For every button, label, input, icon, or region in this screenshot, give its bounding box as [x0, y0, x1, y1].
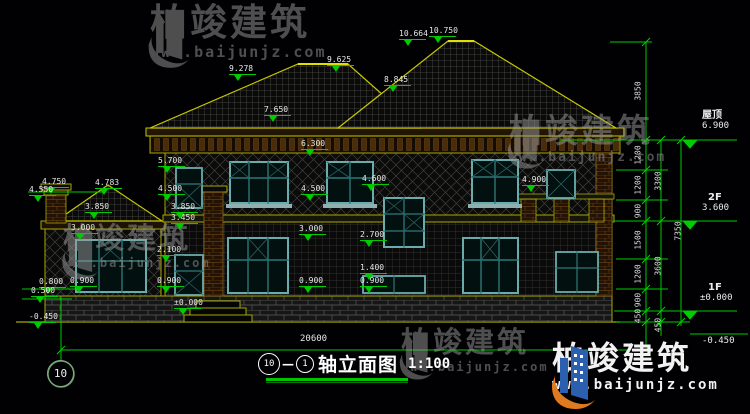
level-marker: 4.500 [301, 184, 328, 201]
title-scale: 1:100 [408, 356, 450, 372]
level-marker: 3.000 [71, 223, 98, 240]
level-marker: 3.850 [85, 202, 112, 219]
level-marker: -0.450 [29, 312, 58, 329]
below-grade-annotation: -0.450 [702, 336, 735, 346]
level-marker: 0.900 [157, 276, 184, 293]
level-marker: 4.600 [362, 174, 389, 191]
window [228, 238, 288, 293]
level-marker: 10.664 [399, 29, 428, 46]
level-marker: 3.450 [171, 213, 198, 230]
dimension-label: 900 [634, 204, 643, 218]
window [556, 252, 598, 292]
level-marker: 4.550 [29, 185, 56, 202]
level-marker: 7.650 [264, 105, 291, 122]
window [226, 162, 292, 208]
dimension-label: 7350 [674, 221, 683, 240]
dimension-label: 1200 [634, 175, 643, 194]
roof-label: 屋顶 [702, 106, 729, 121]
level-marker: 4.500 [158, 184, 185, 201]
dimension-label: 1200 [634, 145, 643, 164]
window [547, 170, 575, 198]
level-marker: 0.900 [360, 276, 387, 293]
roof [150, 41, 616, 128]
floor2-value: 3.600 [702, 203, 729, 213]
dimension-label: 3300 [654, 171, 663, 190]
level-marker: 2.700 [360, 230, 387, 247]
level-marker: 9.278 [229, 64, 256, 81]
floor1-level-annotation: 1F ±0.000 [708, 282, 733, 303]
level-marker: 9.625 [327, 55, 354, 72]
level-marker: 3.000 [299, 224, 326, 241]
dimension-label: 1500 [634, 230, 643, 249]
level-marker: 5.700 [158, 156, 185, 173]
title-axis-to-bubble: 1 [296, 355, 314, 373]
dimension-label: 450 [654, 318, 663, 332]
title-dash: — [282, 357, 294, 371]
dimension-label: 450 [634, 309, 643, 323]
window [384, 198, 424, 247]
level-marker: 4.900 [522, 175, 549, 192]
dimension-label: 3850 [634, 81, 643, 100]
dimension-label: 900 [634, 293, 643, 307]
title-underline [266, 378, 408, 381]
level-marker: 6.300 [301, 139, 328, 156]
drawing-title: 10 — 1 轴立面图 1:100 [258, 350, 450, 377]
overall-width-dimension: 20600 [300, 334, 327, 344]
title-text: 轴立面图 [318, 350, 398, 377]
dimension-label: 3600 [654, 256, 663, 275]
level-marker: 0.500 [31, 286, 58, 303]
level-marker: 10.750 [429, 26, 458, 43]
level-marker: 2.100 [157, 245, 184, 262]
title-underline-thin [266, 382, 408, 383]
window [463, 238, 518, 293]
roof-level-annotation: 屋顶 6.900 [702, 106, 729, 131]
window [468, 160, 522, 208]
foundation-base [45, 296, 612, 322]
level-marker: 0.900 [299, 276, 326, 293]
dimension-label: 1200 [634, 264, 643, 283]
below-grade-value: -0.450 [702, 336, 735, 346]
floor2-label: 2F [708, 192, 729, 203]
roof-value: 6.900 [702, 121, 729, 131]
axis-bubble-10: 10 [47, 360, 74, 387]
floor1-label: 1F [708, 282, 733, 293]
title-axis-from-bubble: 10 [258, 353, 280, 375]
level-marker: ±0.000 [174, 298, 203, 315]
level-marker: 8.845 [384, 75, 411, 92]
level-marker: 0.900 [70, 276, 97, 293]
floor1-value: ±0.000 [700, 293, 733, 303]
floor2-level-annotation: 2F 3.600 [708, 192, 729, 213]
level-marker: 4.783 [95, 178, 122, 195]
cad-canvas: 柏竣建筑 www.baijunjz.com 柏竣建筑 www.baijunjz.… [0, 0, 750, 414]
